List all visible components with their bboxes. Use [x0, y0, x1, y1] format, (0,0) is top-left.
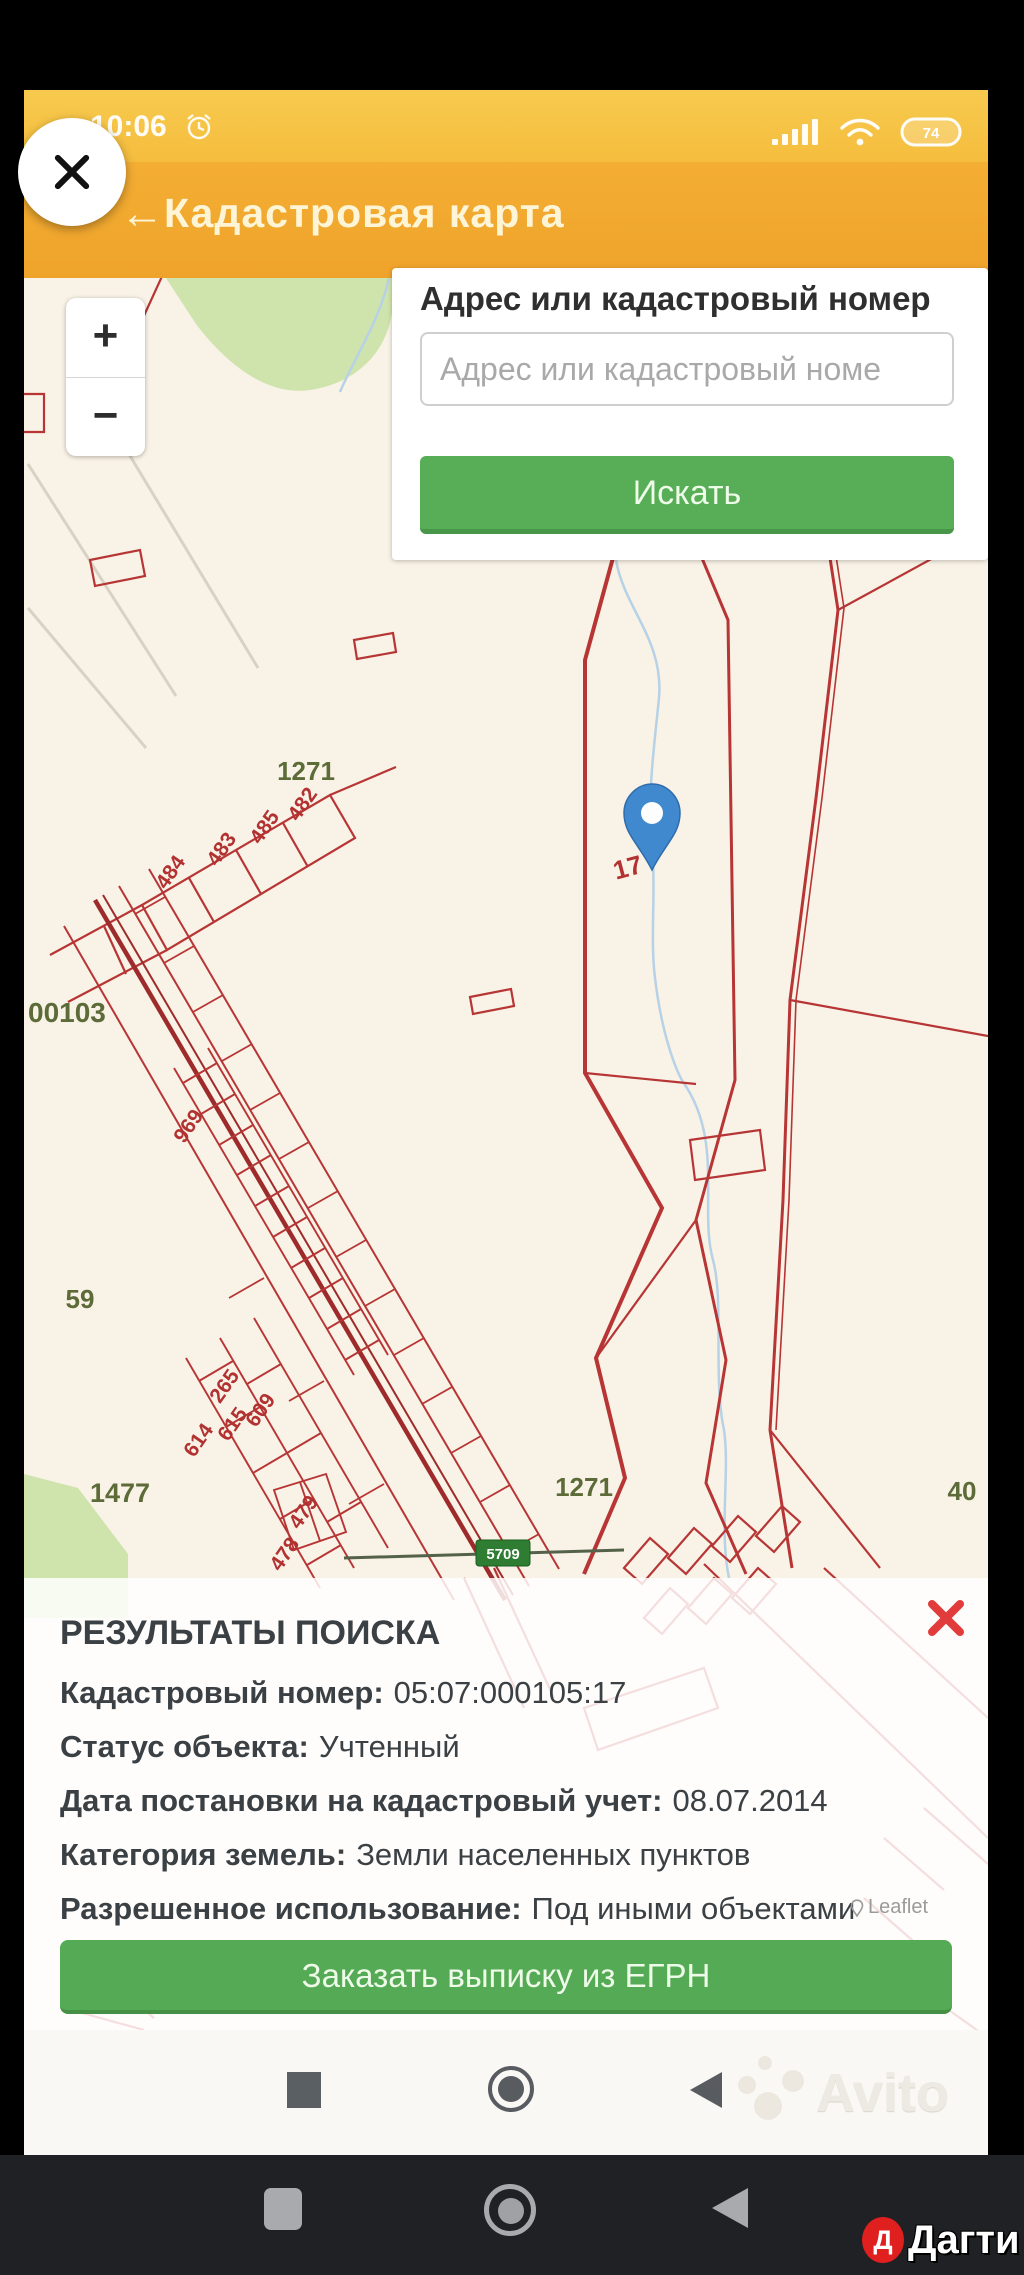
avito-logo-circle — [758, 2056, 772, 2070]
phone-navigation-bar: Д Дагти — [0, 2155, 1024, 2275]
result-row: Дата постановки на кадастровый учет:08.0… — [60, 1783, 970, 1819]
back-arrow-icon[interactable]: ← — [120, 192, 164, 236]
result-row: Статус объекта:Учтенный — [60, 1729, 970, 1765]
signal-icon — [772, 117, 820, 147]
recents-icon[interactable] — [287, 2072, 321, 2108]
phone-screen: 10:06 74 ← Кадас — [0, 0, 1024, 2275]
dagti-watermark-text: Дагти — [908, 2218, 1020, 2263]
close-button[interactable] — [18, 118, 126, 226]
app-header: ← Кадастровая карта — [24, 162, 988, 278]
avito-logo-circle — [738, 2076, 756, 2094]
home-icon[interactable] — [488, 2066, 534, 2112]
battery-icon: 74 — [900, 116, 962, 148]
phone-home-icon[interactable] — [484, 2184, 536, 2236]
result-row: Кадастровый номер:05:07:000105:17 — [60, 1675, 970, 1711]
zoom-in-button[interactable]: + — [66, 298, 145, 377]
dagti-logo: Д — [862, 2217, 904, 2263]
svg-text:59: 59 — [66, 1284, 95, 1314]
road-sign-label: 5709 — [486, 1546, 519, 1563]
back-triangle-icon[interactable] — [690, 2072, 722, 2108]
wifi-icon — [838, 116, 882, 148]
leaflet-marker-icon — [850, 1899, 864, 1917]
svg-text:1271: 1271 — [277, 756, 335, 786]
app-window: 10:06 74 ← Кадас — [24, 90, 988, 2155]
avito-watermark: Avito — [738, 2048, 988, 2138]
home-dot — [498, 2076, 524, 2102]
search-label: Адрес или кадастровый номер — [420, 280, 931, 318]
battery-percent: 74 — [923, 125, 940, 142]
phone-back-triangle-icon[interactable] — [712, 2188, 748, 2228]
leaflet-attribution[interactable]: Leaflet — [850, 1896, 928, 1919]
leaflet-label: Leaflet — [868, 1896, 928, 1919]
search-input[interactable] — [420, 332, 954, 406]
alarm-icon — [184, 112, 214, 142]
svg-text:1477: 1477 — [90, 1478, 150, 1508]
avito-logo-circle — [754, 2092, 782, 2120]
order-egrn-button[interactable]: Заказать выписку из ЕГРН — [60, 1940, 952, 2014]
search-button[interactable]: Искать — [420, 456, 954, 534]
search-panel: Адрес или кадастровый номер Искать — [392, 268, 988, 560]
status-bar: 10:06 74 — [24, 90, 988, 162]
avito-logo-circle — [782, 2070, 804, 2092]
app-navigation-bar: Avito — [24, 2030, 988, 2155]
map-zoom-control: + − — [66, 298, 145, 456]
zoom-out-button[interactable]: − — [66, 378, 145, 456]
phone-recents-icon[interactable] — [264, 2188, 302, 2230]
svg-text:40: 40 — [948, 1476, 977, 1506]
phone-home-dot — [498, 2198, 524, 2224]
page-title: Кадастровая карта — [164, 190, 565, 237]
result-row: Категория земель:Земли населенных пункто… — [60, 1837, 970, 1873]
result-row: Разрешенное использование:Под иными объе… — [60, 1891, 970, 1927]
results-close-icon[interactable] — [922, 1594, 970, 1642]
results-heading: РЕЗУЛЬТАТЫ ПОИСКА — [60, 1614, 440, 1653]
svg-text:1271: 1271 — [555, 1472, 613, 1502]
avito-watermark-text: Avito — [816, 2062, 949, 2124]
dagti-watermark: Д Дагти — [862, 2217, 1020, 2263]
svg-text:00103: 00103 — [28, 997, 106, 1028]
